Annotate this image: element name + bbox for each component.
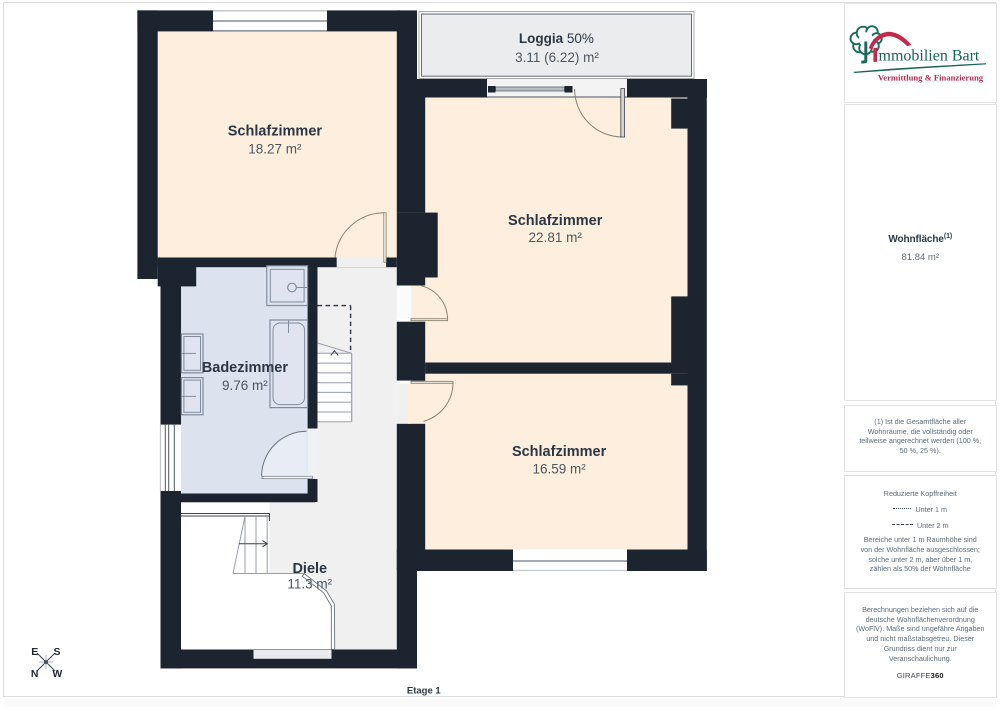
svg-text:18.27 m²: 18.27 m² xyxy=(248,141,302,156)
svg-text:3.11 (6.22) m²: 3.11 (6.22) m² xyxy=(515,50,599,65)
svg-text:W: W xyxy=(52,668,62,680)
svg-text:Diele: Diele xyxy=(292,561,327,577)
svg-text:Etage 1: Etage 1 xyxy=(407,686,442,697)
svg-text:Vermittlung & Finanzierung: Vermittlung & Finanzierung xyxy=(877,72,983,82)
svg-text:Schlafzimmer: Schlafzimmer xyxy=(512,444,607,460)
svg-text:9.76 m²: 9.76 m² xyxy=(222,378,268,393)
svg-text:S: S xyxy=(53,646,60,658)
svg-text:22.81 m²: 22.81 m² xyxy=(529,230,583,245)
svg-text:16.59 m²: 16.59 m² xyxy=(532,461,586,476)
svg-text:mmobilien Bart: mmobilien Bart xyxy=(878,47,979,64)
svg-text:11.3 m²: 11.3 m² xyxy=(287,576,332,591)
svg-text:E: E xyxy=(31,646,38,658)
svg-text:N: N xyxy=(31,668,39,680)
svg-text:Badezimmer: Badezimmer xyxy=(202,360,289,376)
svg-text:Schlafzimmer: Schlafzimmer xyxy=(228,123,323,139)
svg-text:Loggia 50%: Loggia 50% xyxy=(519,31,594,46)
svg-text:Schlafzimmer: Schlafzimmer xyxy=(508,213,603,229)
